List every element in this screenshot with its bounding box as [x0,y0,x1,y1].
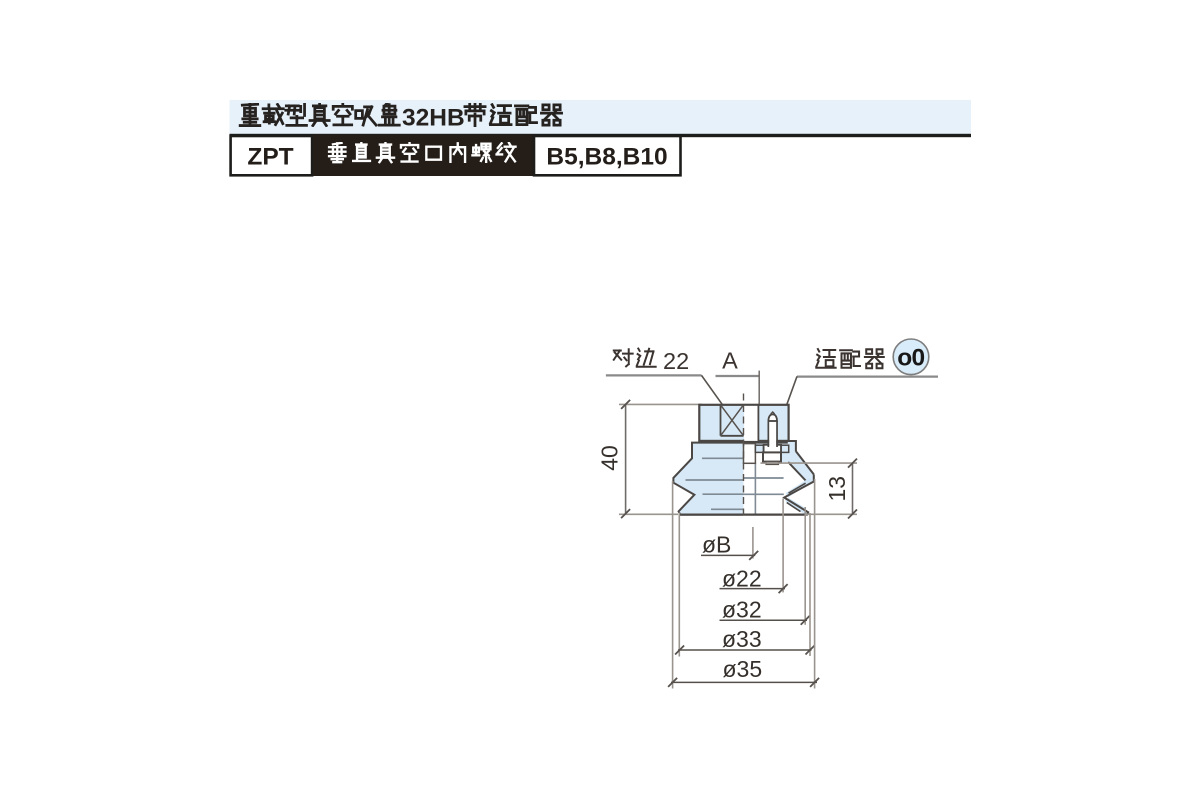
svg-text:ø33: ø33 [722,626,762,652]
svg-text:ZPT: ZPT [247,144,293,171]
svg-text:ø32: ø32 [722,597,762,623]
svg-text:22: 22 [663,348,689,374]
svg-text:B5,B8,B10: B5,B8,B10 [546,144,667,171]
svg-text:32HB: 32HB [402,105,465,132]
svg-text:øB: øB [702,532,731,558]
svg-text:13: 13 [824,476,850,502]
svg-text:ø35: ø35 [723,656,763,682]
svg-text:ø22: ø22 [722,565,762,591]
svg-text:A: A [722,348,738,374]
svg-text:40: 40 [597,445,623,471]
svg-text:o0: o0 [897,344,924,371]
